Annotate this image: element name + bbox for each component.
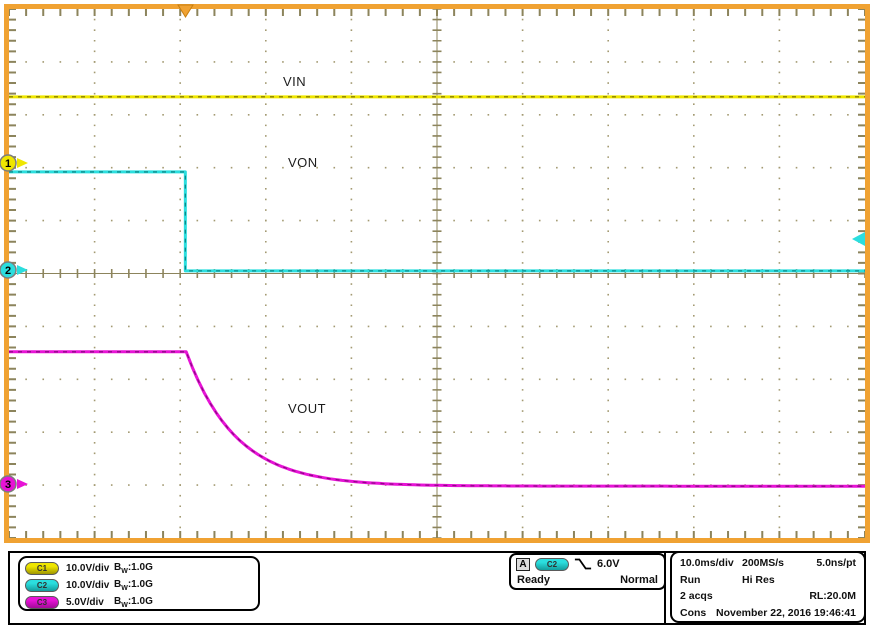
svg-text:1: 1	[5, 158, 11, 170]
channel2-scale[interactable]: 10.0V/div	[66, 580, 114, 591]
sample-rate: 200MS/s	[742, 557, 784, 569]
horizontal-acquisition-box: 10.0ms/div 200MS/s 5.0ns/pt Run Hi Res 2…	[670, 551, 866, 623]
trigger-state: Ready	[517, 574, 550, 586]
channel3-ref-marker[interactable]: 3	[0, 476, 28, 492]
trigger-mode: Normal	[620, 574, 658, 586]
channel2-badge[interactable]: C2	[25, 579, 59, 592]
waveform-display: VIN VON VOUT 1 2 3	[4, 4, 870, 543]
vin-label: VIN	[283, 74, 306, 89]
falling-edge-icon	[574, 557, 592, 571]
timebase-scale[interactable]: 10.0ms/div	[680, 557, 742, 569]
cons-label: Cons	[680, 607, 716, 619]
channel1-bandwidth: BW:1.0G	[114, 562, 153, 575]
record-length: RL:20.0M	[809, 590, 856, 602]
datetime-row: Cons November 22, 2016 19:46:41	[680, 605, 856, 622]
von-label: VON	[288, 155, 318, 170]
channel3-badge[interactable]: C3	[25, 596, 59, 609]
channel1-badge[interactable]: C1	[25, 562, 59, 575]
svg-text:2: 2	[5, 265, 11, 277]
trigger-box[interactable]: A C2 6.0V Ready Normal	[509, 553, 666, 590]
acquisition-count: 2 acqs	[680, 590, 713, 602]
channel-settings-box: C1 10.0V/div BW:1.0G C2 10.0V/div BW:1.0…	[18, 556, 260, 611]
date-readout: November 22, 2016	[716, 607, 811, 619]
trigger-settings-row: A C2 6.0V	[511, 555, 664, 573]
sample-resolution: 5.0ns/pt	[816, 557, 856, 569]
channel1-readout-row: C1 10.0V/div BW:1.0G	[20, 560, 258, 577]
readout-bar: C1 10.0V/div BW:1.0G C2 10.0V/div BW:1.0…	[8, 551, 866, 625]
channel2-bandwidth: BW:1.0G	[114, 579, 153, 592]
trigger-channel-badge[interactable]: C2	[535, 558, 569, 571]
scope-plot-area: VIN VON VOUT 1 2 3	[9, 9, 865, 538]
trigger-source-a-badge[interactable]: A	[516, 558, 530, 571]
channel3-readout-row: C3 5.0V/div BW:1.0G	[20, 594, 258, 611]
vout-label: VOUT	[288, 401, 326, 416]
graticule-grid	[9, 9, 865, 538]
time-readout: 19:46:41	[814, 607, 856, 619]
channel2-ref-marker[interactable]: 2	[0, 262, 28, 278]
svg-text:3: 3	[5, 479, 11, 491]
oscilloscope-screen: VIN VON VOUT 1 2 3	[0, 0, 875, 629]
acquisition-state: Run	[680, 574, 742, 586]
trigger-status-row: Ready Normal	[511, 573, 664, 586]
channel3-bandwidth: BW:1.0G	[114, 596, 153, 609]
acquisition-state-row: Run Hi Res	[680, 572, 856, 589]
trigger-level-readout: 6.0V	[597, 558, 620, 570]
trigger-level-marker[interactable]	[852, 232, 865, 246]
acquisition-mode: Hi Res	[742, 574, 775, 586]
channel1-scale[interactable]: 10.0V/div	[66, 563, 114, 574]
timebase-row: 10.0ms/div 200MS/s 5.0ns/pt	[680, 555, 856, 572]
channel2-readout-row: C2 10.0V/div BW:1.0G	[20, 577, 258, 594]
channel1-ref-marker[interactable]: 1	[0, 155, 28, 171]
acquisition-count-row: 2 acqs RL:20.0M	[680, 588, 856, 605]
channel3-scale[interactable]: 5.0V/div	[66, 597, 114, 608]
